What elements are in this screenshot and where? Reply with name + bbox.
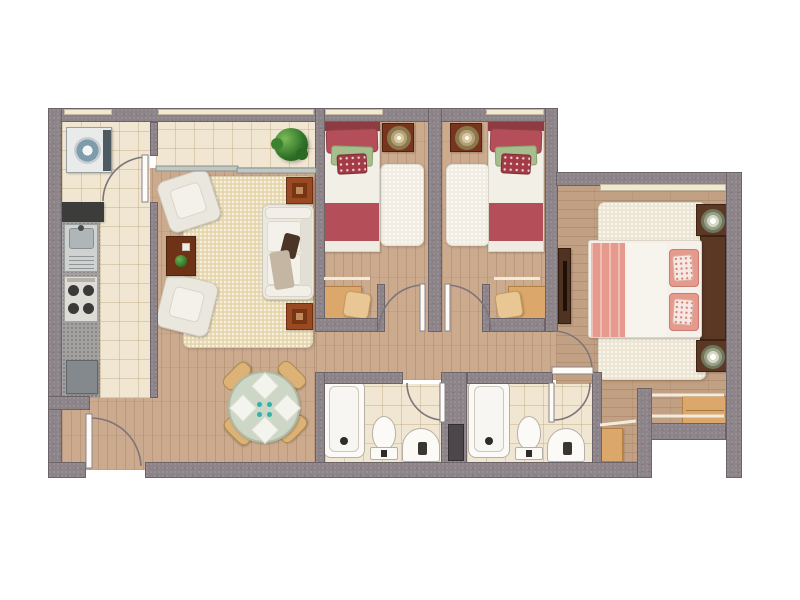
sliding-glass-door-panel: [156, 166, 238, 171]
bedroom2-door-leaf: [445, 284, 450, 331]
master-door-arc: [553, 331, 592, 370]
sliding-glass-door-panel: [237, 168, 316, 173]
master-door-leaf: [552, 367, 593, 374]
clothes-rail: [600, 421, 636, 425]
plan-overlay: [0, 0, 800, 600]
bathroom2-door-arc: [553, 383, 590, 420]
kitchen-door-arc: [103, 157, 147, 201]
bathroom2-door-leaf: [549, 383, 554, 422]
kitchen-door-leaf: [142, 155, 148, 202]
entry-door-arc: [91, 418, 141, 466]
bedroom1-door-arc: [379, 285, 424, 330]
bedroom2-door-arc: [446, 285, 491, 330]
entry-door-leaf: [86, 414, 92, 468]
bedroom2-shelf: [494, 277, 540, 280]
bedroom1-shelf: [324, 277, 370, 280]
floor-plan: [0, 0, 800, 600]
bathroom1-door-arc: [407, 383, 444, 420]
bedroom1-door-leaf: [420, 284, 425, 331]
bathroom1-door-leaf: [440, 383, 445, 422]
